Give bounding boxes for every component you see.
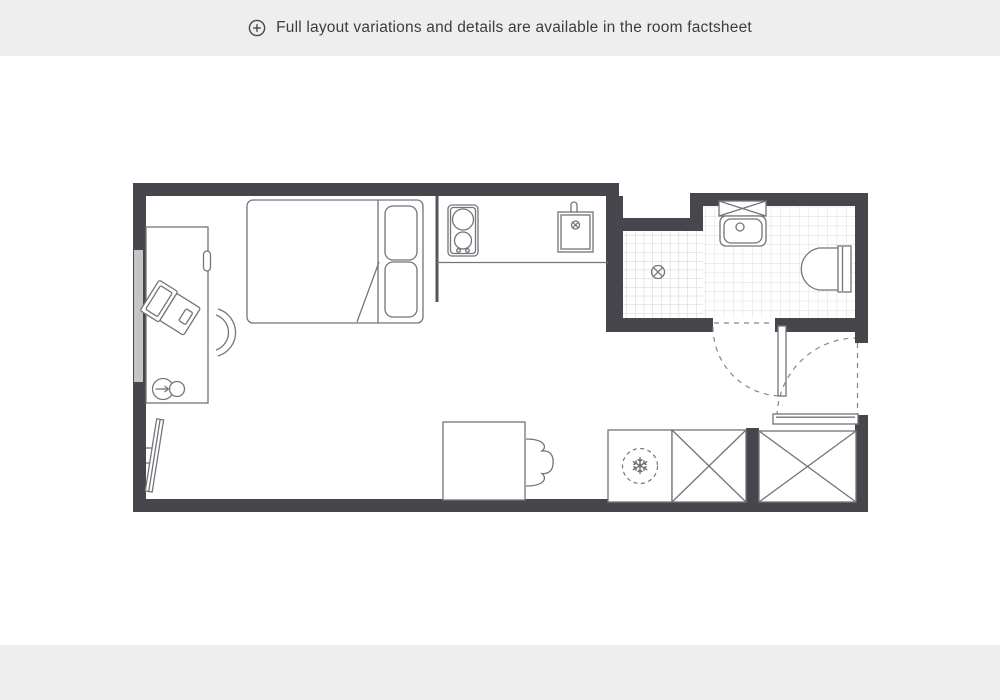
shower-floor-tiles	[623, 231, 703, 318]
refrigerator-unit: ❄	[608, 430, 672, 502]
dining-chair	[526, 439, 553, 486]
wash-basin-icon	[719, 201, 766, 246]
bed	[247, 200, 423, 323]
wall-top	[133, 183, 619, 196]
wall-right-lower	[855, 415, 868, 512]
entrance-door-leaf	[773, 414, 858, 424]
wall-bath-bottom-right	[775, 318, 868, 332]
window-glass-strip	[134, 250, 143, 382]
room-factsheet-page: Full layout variations and details are a…	[0, 0, 1000, 700]
toilet-icon	[801, 246, 851, 292]
kitchen-partition	[436, 196, 439, 302]
kitchen-sink-icon	[558, 202, 593, 252]
desk-accessory	[204, 251, 211, 271]
mirror	[145, 419, 163, 492]
wall-storage-stub	[746, 428, 759, 512]
power-socket-icon	[153, 379, 185, 400]
dining-table	[443, 422, 525, 500]
shelving-storage-2	[759, 431, 856, 502]
entrance-door-swing	[777, 338, 855, 416]
shelving-storage-1	[672, 430, 746, 502]
floor-plan: ❄	[0, 0, 1000, 700]
wall-bath-bottom-left	[608, 318, 713, 332]
desk-chair	[216, 309, 236, 356]
legend: Key: ❄ Refrigerator unit Shelving / stor…	[0, 645, 1000, 700]
wall-shower-top	[616, 218, 703, 231]
wall-top-right	[690, 193, 868, 206]
bathroom-door-leaf	[778, 326, 786, 396]
wall-kitchen-bath-divider	[606, 196, 623, 332]
bathroom-door-swing	[713, 327, 782, 396]
hob-icon	[448, 205, 478, 256]
snowflake-icon: ❄	[630, 453, 649, 479]
